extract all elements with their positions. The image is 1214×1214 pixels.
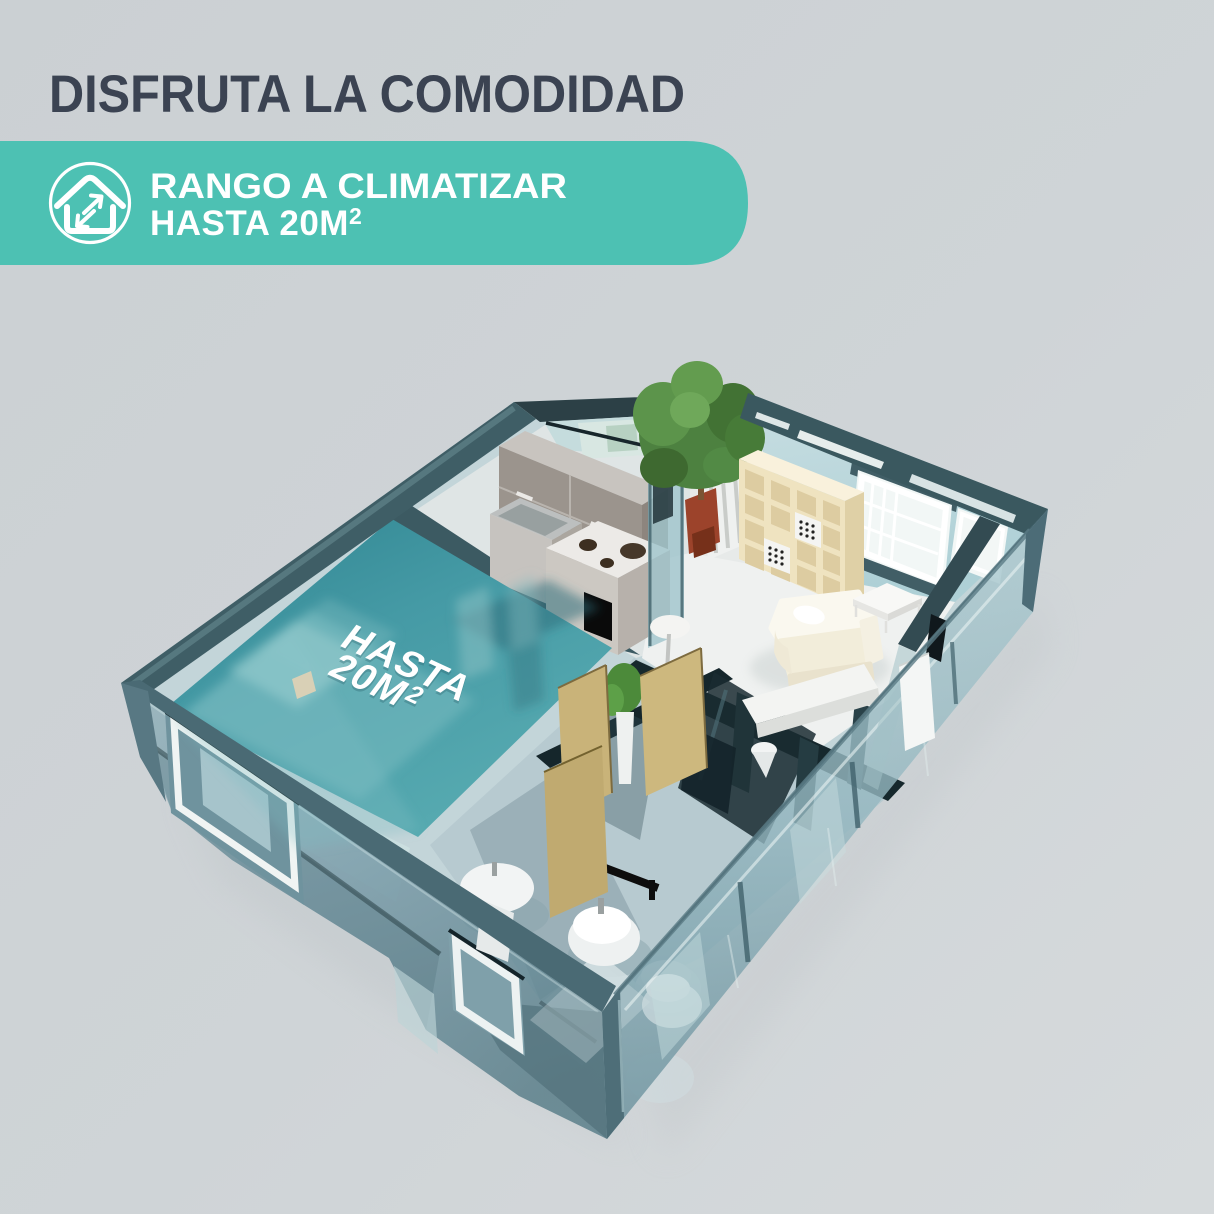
svg-text:RANGO A CLIMATIZAR: RANGO A CLIMATIZAR xyxy=(150,167,567,206)
svg-text:HASTA 20M2: HASTA 20M2 xyxy=(150,203,362,243)
svg-text:DISFRUTA LA COMODIDAD: DISFRUTA LA COMODIDAD xyxy=(49,65,685,124)
